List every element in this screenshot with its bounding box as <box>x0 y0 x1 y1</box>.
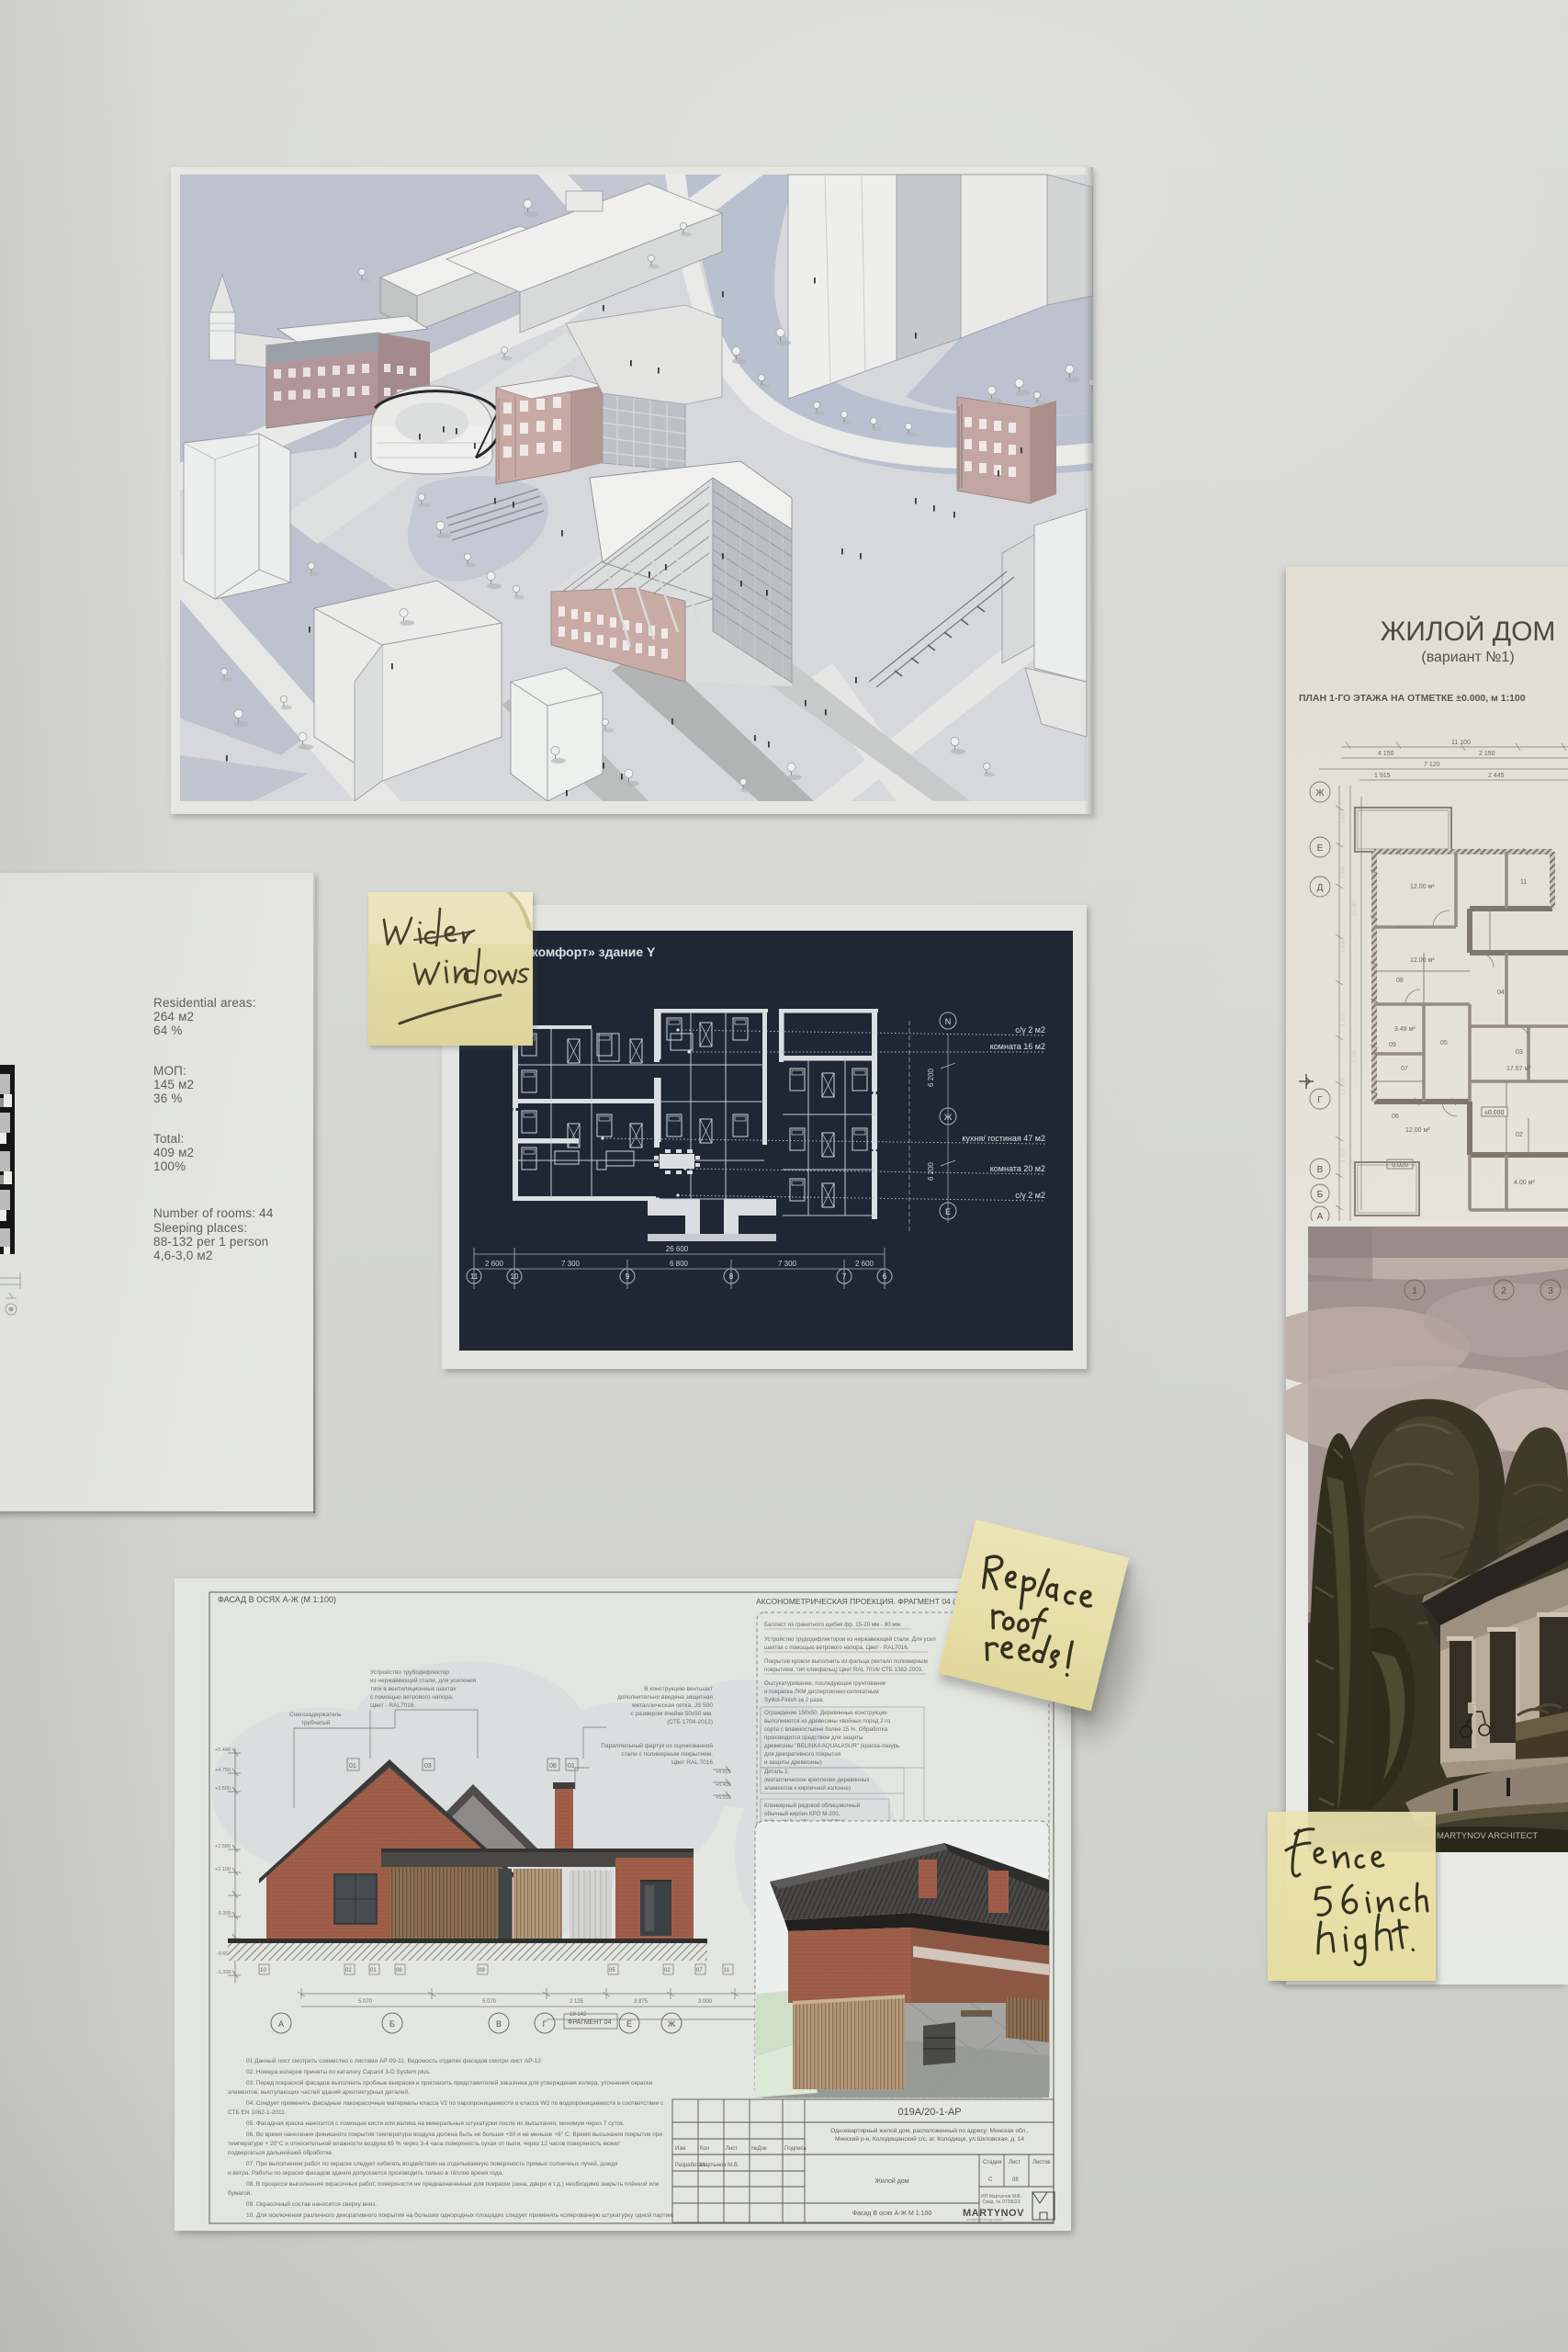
svg-text:А: А <box>278 2019 284 2029</box>
svg-text:Подпись: Подпись <box>784 2146 807 2152</box>
svg-text:07. При выполнении работ по ок: 07. При выполнении работ по окраске след… <box>246 2160 618 2167</box>
svg-text:+2.100: +2.100 <box>215 1867 231 1872</box>
svg-text:10: 10 <box>260 1968 266 1973</box>
svg-text:Листов: Листов <box>1032 2160 1051 2165</box>
svg-text:3: 3 <box>1548 1286 1553 1296</box>
svg-text:Одноквартирный жилой дом, расп: Одноквартирный жилой дом, расположенный … <box>830 2127 1029 2134</box>
svg-text:Лист: Лист <box>726 2146 738 2152</box>
svg-text:04. Следует применять фасадные: 04. Следует применять фасадные лакокрасо… <box>246 2100 664 2107</box>
svg-text:6 800: 6 800 <box>670 1260 689 1268</box>
svg-text:08. В процессе выполнения окра: 08. В процессе выполнения окрасочных раб… <box>246 2180 660 2188</box>
svg-text:подвергаться дальнейшей обрабо: подвергаться дальнейшей обработке. <box>228 2149 333 2156</box>
svg-text:с/у 2 м2: с/у 2 м2 <box>1015 1025 1045 1035</box>
svg-text:Устройство трубодефлектор: Устройство трубодефлектор <box>370 1668 449 1676</box>
svg-text:2 600: 2 600 <box>855 1260 874 1268</box>
svg-text:08: 08 <box>1396 978 1404 984</box>
svg-text:Кол: Кол <box>700 2146 710 2152</box>
svg-text:7 120: 7 120 <box>1424 762 1440 768</box>
svg-text:01: 01 <box>370 1968 377 1973</box>
svg-text:2 445: 2 445 <box>1488 773 1505 779</box>
svg-text:8: 8 <box>729 1272 734 1281</box>
svg-text:ФАСАД В ОСЯХ А-Ж (М 1:100): ФАСАД В ОСЯХ А-Ж (М 1:100) <box>218 1595 336 1604</box>
svg-text:В: В <box>496 2019 502 2029</box>
svg-text:+3.500: +3.500 <box>215 1786 231 1792</box>
svg-text:12.00 м²: 12.00 м² <box>1410 884 1435 890</box>
svg-text:9: 9 <box>626 1272 630 1281</box>
svg-text:сорта с влажностьюне более 15: сорта с влажностьюне более 15 %. Обработ… <box>764 1726 888 1733</box>
svg-text:Е: Е <box>945 1207 951 1216</box>
svg-text:12.00 м²: 12.00 м² <box>1410 957 1435 964</box>
svg-text:4.00 м²: 4.00 м² <box>1514 1180 1535 1186</box>
svg-text:АКСОНОМЕТРИЧЕСКАЯ ПРОЕКЦИЯ. ФР: АКСОНОМЕТРИЧЕСКАЯ ПРОЕКЦИЯ. ФРАГМЕНТ 04 … <box>756 1597 987 1606</box>
svg-text:09: 09 <box>479 1968 485 1973</box>
svg-text:обычный кирпич КРО М-200,: обычный кирпич КРО М-200, <box>764 1811 840 1817</box>
svg-text:03. Перед покраской фасадов вы: 03. Перед покраской фасадов выполнить пр… <box>246 2079 653 2086</box>
svg-text:и защиты древесины): и защиты древесины) <box>764 1759 822 1766</box>
svg-text:Г: Г <box>543 2019 547 2029</box>
svg-text:01: 01 <box>349 1763 356 1770</box>
svg-text:09: 09 <box>1389 1042 1396 1048</box>
svg-text:7 300: 7 300 <box>561 1260 581 1268</box>
svg-text:2 000: 2 000 <box>1341 865 1347 879</box>
svg-text:Жилой дом: Жилой дом <box>874 2177 908 2185</box>
svg-text:Оштукатуривание, последующее г: Оштукатуривание, последующее грунтование <box>764 1680 886 1687</box>
svg-text:шахтах с помощью ветрового нап: шахтах с помощью ветрового напора. Цвет … <box>764 1645 909 1651</box>
svg-text:металлическая сетка. JS 500: металлическая сетка. JS 500 <box>632 1702 713 1709</box>
svg-text:17.67 м²: 17.67 м² <box>1506 1066 1531 1072</box>
svg-text:(вариант №1): (вариант №1) <box>1421 650 1514 665</box>
svg-text:6 200: 6 200 <box>927 1161 935 1181</box>
svg-text:стали с полимерным покрытием.: стали с полимерным покрытием. <box>622 1751 714 1758</box>
svg-text:03: 03 <box>424 1763 432 1770</box>
svg-text:В: В <box>1317 1165 1324 1175</box>
svg-text:11: 11 <box>470 1272 479 1281</box>
svg-text:+2.580: +2.580 <box>215 1844 231 1849</box>
svg-text:Покрытие кровли выполнить из ф: Покрытие кровли выполнить из фальца (мет… <box>764 1658 928 1665</box>
svg-text:3 875: 3 875 <box>634 1999 649 2005</box>
svg-text:-0.300: -0.300 <box>217 1911 231 1917</box>
svg-text:древесины "BELINKA AQUALASUR": древесины "BELINKA AQUALASUR" (краска-ла… <box>764 1743 899 1749</box>
svg-text:Д: Д <box>1317 883 1324 893</box>
svg-text:Б: Б <box>1317 1190 1324 1200</box>
svg-text:01: 01 <box>568 1763 575 1770</box>
svg-text:СТБ EN 1062-1-2011.: СТБ EN 1062-1-2011. <box>228 2109 287 2116</box>
svg-text:1 500: 1 500 <box>1341 1012 1347 1026</box>
svg-text:04: 04 <box>1497 989 1505 996</box>
svg-text:ЖИЛОЙ ДОМ: ЖИЛОЙ ДОМ <box>1381 616 1556 647</box>
svg-text:12 780: 12 780 <box>1341 1078 1347 1095</box>
svg-text:1: 1 <box>1412 1286 1417 1296</box>
svg-text:5 070: 5 070 <box>482 1999 497 2005</box>
svg-text:11: 11 <box>724 1968 730 1973</box>
svg-text:11 100: 11 100 <box>1451 740 1471 746</box>
svg-text:температуре + 20°С и относител: температуре + 20°С и относительной влажн… <box>228 2140 620 2147</box>
svg-text:2 600: 2 600 <box>1341 809 1347 824</box>
svg-text:Снегозадержатель: Снегозадержатель <box>289 1712 342 1718</box>
svg-text:Свид. № 0729023: Свид. № 0729023 <box>983 2199 1021 2205</box>
svg-text:-1.300: -1.300 <box>217 1970 231 1975</box>
svg-text:Мартынов М.В.: Мартынов М.В. <box>700 2163 739 2168</box>
svg-text:2 125: 2 125 <box>570 1999 584 2005</box>
svg-text:019А/20-1-АР: 019А/20-1-АР <box>897 2107 961 2118</box>
svg-text:дополнительно введена защитная: дополнительно введена защитная <box>617 1694 713 1701</box>
svg-text:2 150: 2 150 <box>1479 751 1495 757</box>
svg-text:Параллельный фартук из оцинков: Параллельный фартук из оцинкованной <box>601 1742 713 1749</box>
svg-text:Ж: Ж <box>668 2019 676 2029</box>
svg-text:11: 11 <box>1520 879 1527 886</box>
svg-text:2 600: 2 600 <box>485 1260 504 1268</box>
svg-text:3 000: 3 000 <box>698 1999 713 2005</box>
svg-text:комната 20 м2: комната 20 м2 <box>990 1164 1045 1173</box>
svg-text:7: 7 <box>842 1272 847 1281</box>
svg-text:производится средством для защ: производится средством для защиты <box>764 1735 863 1741</box>
svg-text:Деталь 1: Деталь 1 <box>764 1769 788 1775</box>
svg-text:Клинкерный рядовой облицовочны: Клинкерный рядовой облицовочный <box>764 1803 861 1809</box>
svg-text:Лист: Лист <box>1009 2160 1021 2165</box>
svg-text:07: 07 <box>696 1968 703 1973</box>
svg-text:6 200: 6 200 <box>927 1068 935 1087</box>
svg-text:и покраска ЛКМ дисперсионно-си: и покраска ЛКМ дисперсионно-силикатным <box>764 1689 879 1695</box>
svg-text:09. Окрасочный состав наноситс: 09. Окрасочный состав наносится сверху в… <box>246 2200 377 2208</box>
svg-text:6: 6 <box>883 1272 887 1281</box>
svg-text:7 300: 7 300 <box>778 1260 797 1268</box>
svg-text:ПЛАН 1-ГО ЭТАЖА НА ОТМЕТКЕ ±0.: ПЛАН 1-ГО ЭТАЖА НА ОТМЕТКЕ ±0.000, м 1:1… <box>1299 693 1526 704</box>
svg-text:кухня/ гостиная 47 м2: кухня/ гостиная 47 м2 <box>962 1134 1045 1143</box>
svg-text:06: 06 <box>396 1968 402 1973</box>
svg-text:2: 2 <box>1501 1286 1506 1296</box>
svg-text:+4.750: +4.750 <box>215 1768 231 1773</box>
svg-text:ФРАГМЕНТ 04: ФРАГМЕНТ 04 <box>568 2019 611 2026</box>
svg-text:Устройство трудодефлекторов из: Устройство трудодефлекторов из нержавеющ… <box>764 1636 936 1643</box>
svg-text:Ж: Ж <box>1315 788 1325 798</box>
svg-text:architecture design wood: architecture design wood <box>966 2218 1002 2222</box>
svg-text:Балласт из гранитного щебня фр: Балласт из гранитного щебня фр. 15-20 мм… <box>764 1622 902 1628</box>
svg-text:трубчатый: трубчатый <box>301 1719 331 1726</box>
svg-text:Цвет - RAL7016.: Цвет - RAL7016. <box>370 1702 415 1709</box>
svg-text:02: 02 <box>345 1968 352 1973</box>
svg-text:MARTYNOV ARCHITECT: MARTYNOV ARCHITECT <box>1437 1831 1538 1841</box>
svg-text:05. Фасадная краска наносится: 05. Фасадная краска наносится с помощью … <box>246 2120 625 2127</box>
svg-text:3 760: 3 760 <box>1352 1048 1358 1063</box>
svg-text:С: С <box>988 2177 993 2183</box>
svg-text:08: 08 <box>1012 2177 1019 2183</box>
svg-text:из нержавеющей стали, для усил: из нержавеющей стали, для усиления <box>370 1677 477 1684</box>
svg-text:03: 03 <box>1516 1049 1523 1056</box>
svg-text:1 520: 1 520 <box>1341 1148 1347 1162</box>
svg-text:26 600: 26 600 <box>666 1245 689 1253</box>
svg-text:А: А <box>1317 1212 1324 1222</box>
svg-text:с размером ячейки 50х50 мм.: с размером ячейки 50х50 мм. <box>631 1710 714 1717</box>
svg-text:Цвет RAL 7016: Цвет RAL 7016 <box>671 1759 713 1766</box>
svg-text:18 142: 18 142 <box>570 2012 587 2018</box>
svg-text:02. Номера колеров приняты по: 02. Номера колеров приняты по каталогу C… <box>246 2069 431 2075</box>
svg-text:±0.000: ±0.000 <box>1484 1110 1504 1116</box>
svg-text:(металлическое крепление дерев: (металлическое крепление деревянных <box>764 1777 870 1783</box>
svg-text:N: N <box>945 1017 952 1026</box>
svg-text:с/у 2 м2: с/у 2 м2 <box>1015 1191 1045 1200</box>
svg-text:07: 07 <box>1401 1066 1408 1072</box>
svg-text:Ж: Ж <box>944 1113 953 1122</box>
svg-text:элементов, выступающих частей: элементов, выступающих частей зданий арх… <box>228 2088 410 2096</box>
svg-text:комната 16 м2: комната 16 м2 <box>990 1042 1045 1051</box>
svg-text:10. Для исключения различного: 10. Для исключения различного декоративн… <box>246 2211 674 2219</box>
svg-text:01 Данный лист смотреть совме: 01 Данный лист смотреть совместно с лист… <box>246 2057 541 2064</box>
svg-text:№Док: №Док <box>751 2145 767 2152</box>
svg-text:Фасад В осях А-Ж М 1:100: Фасад В осях А-Ж М 1:100 <box>852 2211 932 2217</box>
svg-text:4 150: 4 150 <box>1378 751 1394 757</box>
svg-text:Стадия: Стадия <box>983 2160 1001 2165</box>
svg-text:Е: Е <box>1317 843 1324 854</box>
svg-text:06. Во время нанесения финишно: 06. Во время нанесения финишного покрыти… <box>246 2131 662 2138</box>
svg-text:В конструкцию вентшахт: В конструкцию вентшахт <box>644 1686 713 1692</box>
svg-text:и ветра. Работы по окраске фас: и ветра. Работы по окраске фасадов здани… <box>228 2169 503 2177</box>
svg-text:покрытием, тип кликфальц) Цвет: покрытием, тип кликфальц) Цвет RAL 7016/… <box>764 1667 923 1673</box>
svg-text:Г: Г <box>1317 1095 1323 1105</box>
svg-text:10 390: 10 390 <box>1352 899 1358 916</box>
svg-text:для декоративного покрытия: для декоративного покрытия <box>764 1751 840 1758</box>
svg-text:тяги в вентиляционных шахтах: тяги в вентиляционных шахтах <box>370 1686 457 1692</box>
svg-text:с помощью ветрового напора.: с помощью ветрового напора. <box>370 1694 454 1701</box>
svg-text:05: 05 <box>609 1968 615 1973</box>
svg-text:Минский р-н, Колодищанский с/с: Минский р-н, Колодищанский с/с, аг. Коло… <box>835 2135 1024 2143</box>
svg-text:Изм: Изм <box>675 2146 685 2152</box>
svg-text:+5.440: +5.440 <box>215 1747 231 1753</box>
svg-text:Е: Е <box>626 2019 632 2029</box>
svg-text:бумагой.: бумагой. <box>228 2189 252 2197</box>
svg-text:(СТБ 1704-2012): (СТБ 1704-2012) <box>667 1719 713 1725</box>
svg-text:1 915: 1 915 <box>1374 773 1391 779</box>
svg-text:02: 02 <box>1516 1132 1523 1138</box>
svg-text:элементов к кирпичной колонне): элементов к кирпичной колонне) <box>764 1785 851 1792</box>
svg-text:06: 06 <box>1392 1114 1399 1120</box>
svg-text:05: 05 <box>1440 1040 1448 1046</box>
svg-text:08: 08 <box>549 1763 557 1770</box>
svg-text:10: 10 <box>511 1272 519 1281</box>
svg-text:Sylitol-Finish за 2 раза.: Sylitol-Finish за 2 раза. <box>764 1697 824 1703</box>
svg-text:-0.020: -0.020 <box>1390 1162 1408 1169</box>
svg-text:02: 02 <box>664 1968 671 1973</box>
svg-text:5 070: 5 070 <box>358 1999 373 2005</box>
svg-text:Ограждение 150х50. Деревянные: Ограждение 150х50. Деревянные конструкци… <box>764 1710 887 1716</box>
svg-text:выполняются из древесины хвойн: выполняются из древесины хвойных пород 2… <box>764 1718 891 1724</box>
svg-text:Б: Б <box>389 2019 395 2029</box>
svg-text:3.48 м²: 3.48 м² <box>1394 1026 1416 1033</box>
svg-text:12.00 м²: 12.00 м² <box>1405 1127 1430 1134</box>
svg-text:1 690: 1 690 <box>1341 938 1347 953</box>
